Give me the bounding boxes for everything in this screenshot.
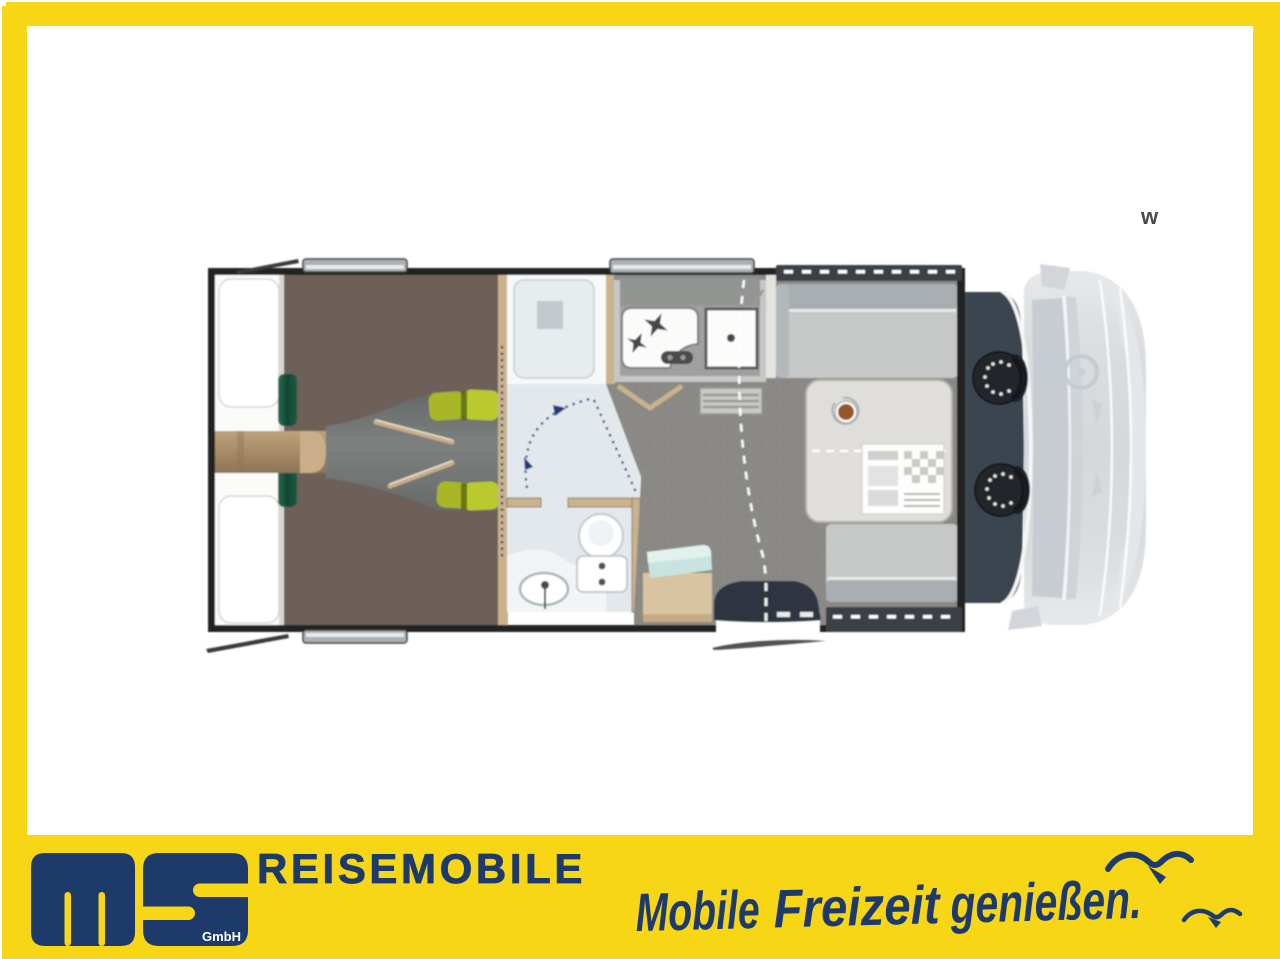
svg-text:genießen.: genießen. [949,870,1142,935]
svg-text:Freizeit: Freizeit [773,875,942,939]
svg-text:REISEMOBILE: REISEMOBILE [257,845,586,892]
svg-text:w: w [1140,204,1159,229]
svg-text:Mobile: Mobile [635,880,761,943]
svg-text:GmbH: GmbH [202,929,241,944]
